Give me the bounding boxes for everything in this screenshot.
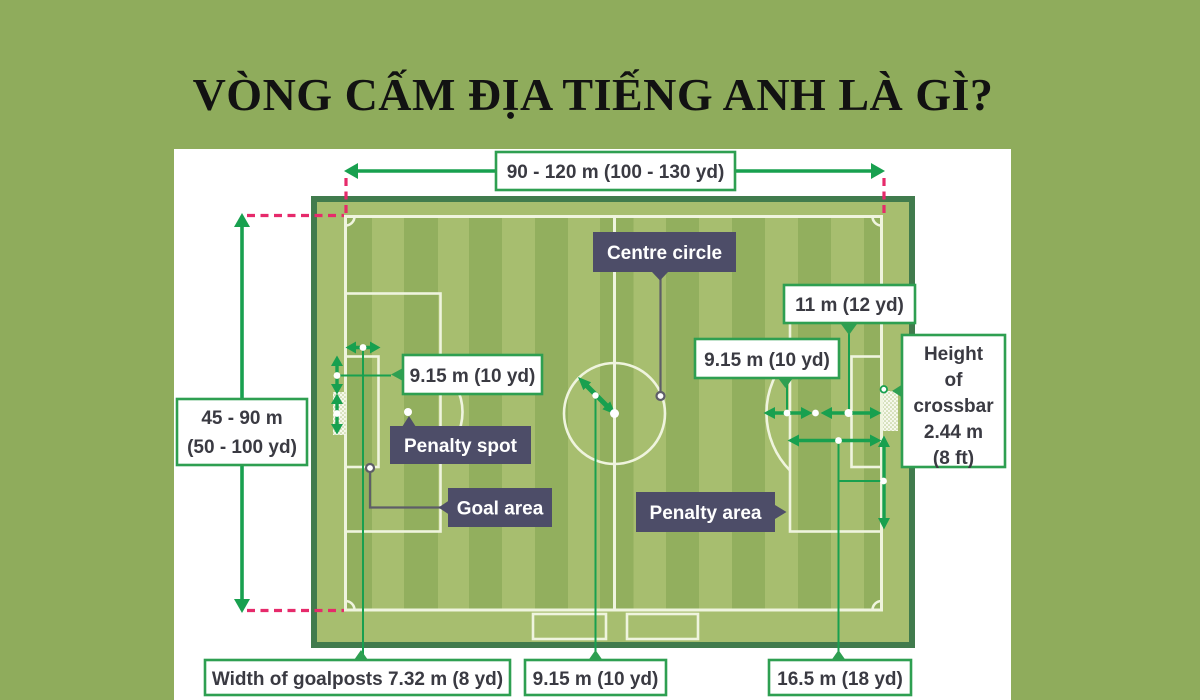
svg-text:9.15 m (10 yd): 9.15 m (10 yd)	[533, 669, 659, 690]
svg-text:45 - 90 m: 45 - 90 m	[201, 408, 282, 429]
svg-text:crossbar: crossbar	[913, 396, 994, 417]
svg-text:2.44 m: 2.44 m	[924, 422, 983, 443]
svg-text:9.15 m (10 yd): 9.15 m (10 yd)	[410, 366, 536, 387]
svg-text:9.15 m (10 yd): 9.15 m (10 yd)	[704, 350, 830, 371]
svg-text:Goal area: Goal area	[457, 499, 544, 520]
svg-text:(8 ft): (8 ft)	[933, 448, 974, 469]
svg-text:90 - 120 m (100 - 130 yd): 90 - 120 m (100 - 130 yd)	[507, 162, 725, 183]
svg-text:Height: Height	[924, 344, 984, 365]
svg-text:of: of	[945, 370, 964, 391]
svg-text:Width of goalposts 7.32 m (8 y: Width of goalposts 7.32 m (8 yd)	[212, 669, 503, 690]
svg-text:Centre circle: Centre circle	[607, 243, 722, 264]
svg-text:16.5 m (18 yd): 16.5 m (18 yd)	[777, 669, 903, 690]
svg-text:(50 - 100 yd): (50 - 100 yd)	[187, 437, 297, 458]
svg-text:Penalty spot: Penalty spot	[404, 436, 518, 457]
svg-text:Penalty area: Penalty area	[650, 503, 762, 524]
svg-text:11 m (12 yd): 11 m (12 yd)	[795, 295, 904, 316]
